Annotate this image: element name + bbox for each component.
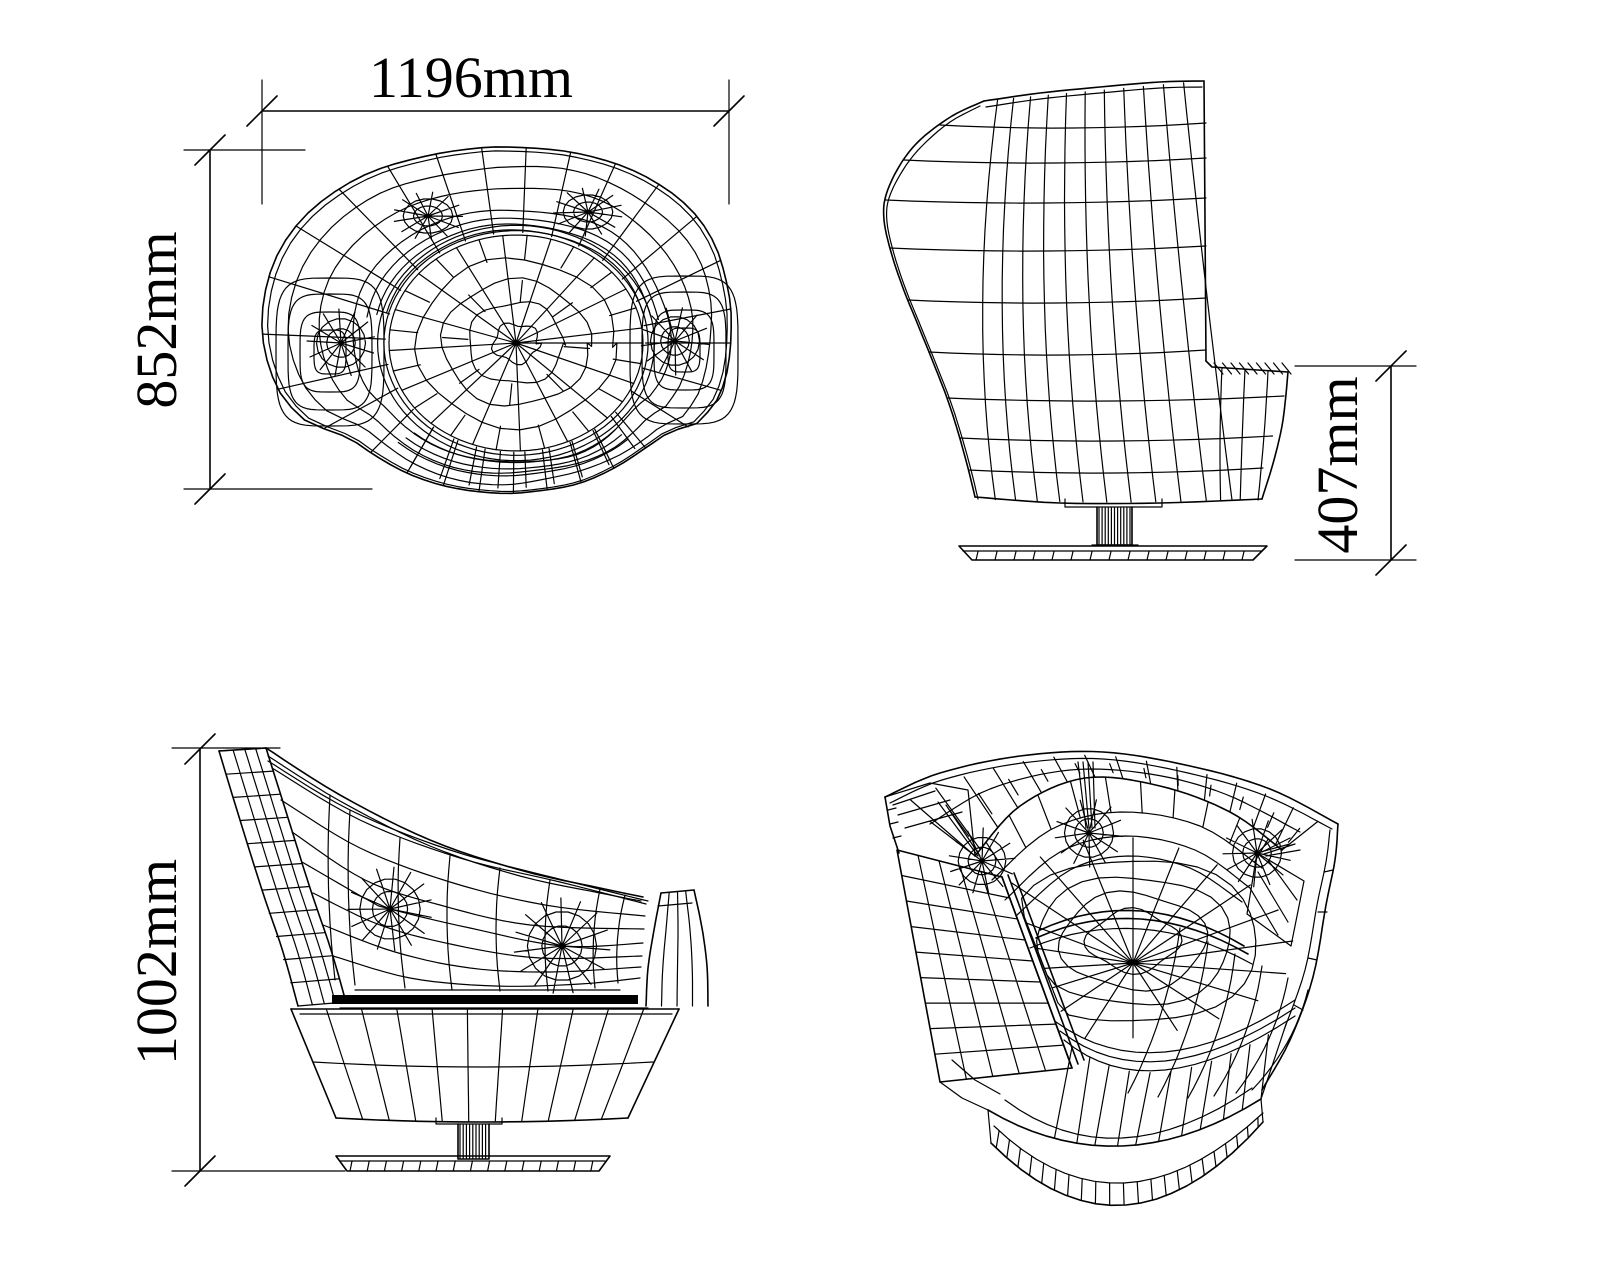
svg-text:1196mm: 1196mm: [369, 45, 573, 110]
svg-text:1002mm: 1002mm: [124, 859, 189, 1065]
svg-text:407mm: 407mm: [1305, 376, 1370, 553]
svg-text:852mm: 852mm: [124, 231, 189, 408]
